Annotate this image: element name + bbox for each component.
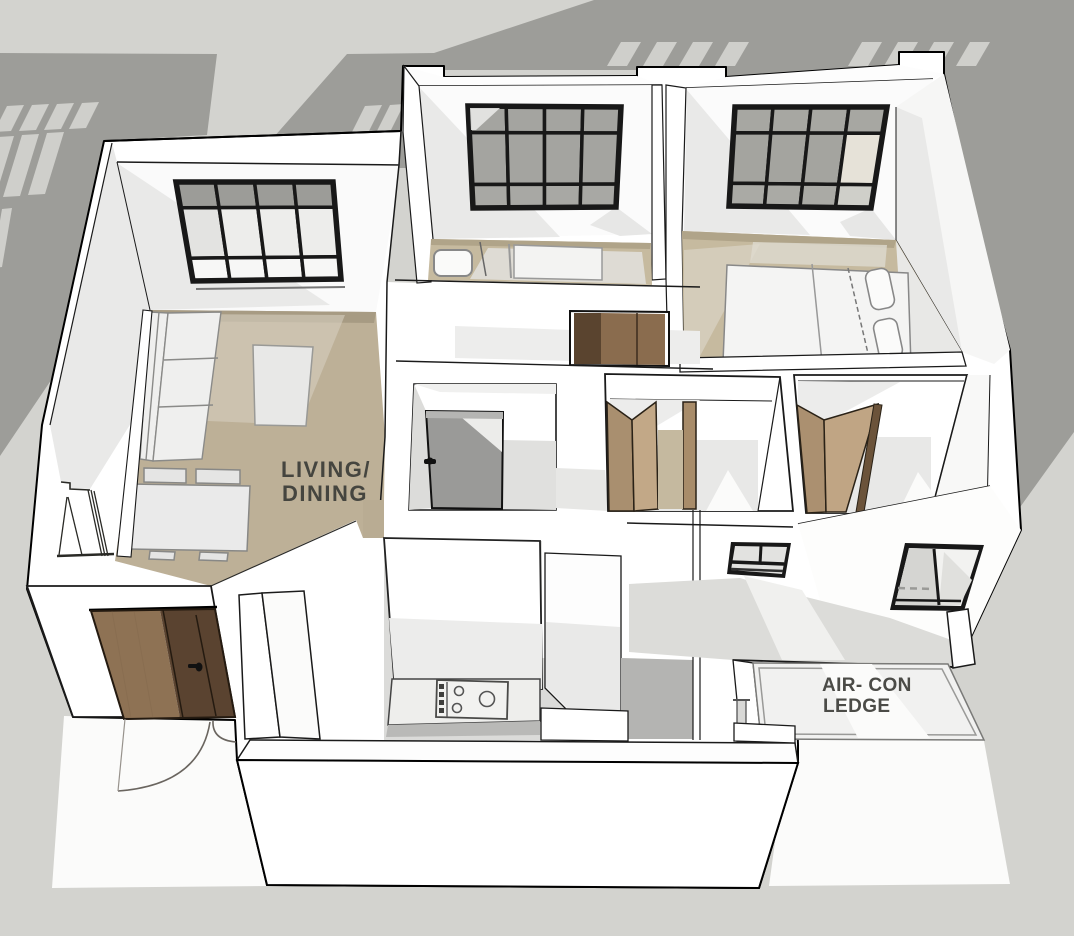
svg-text:LEDGE: LEDGE (823, 696, 890, 717)
svg-text:LIVING/: LIVING/ (281, 457, 371, 482)
svg-text:DINING: DINING (282, 481, 368, 506)
svg-text:AIR- CON: AIR- CON (822, 675, 912, 696)
